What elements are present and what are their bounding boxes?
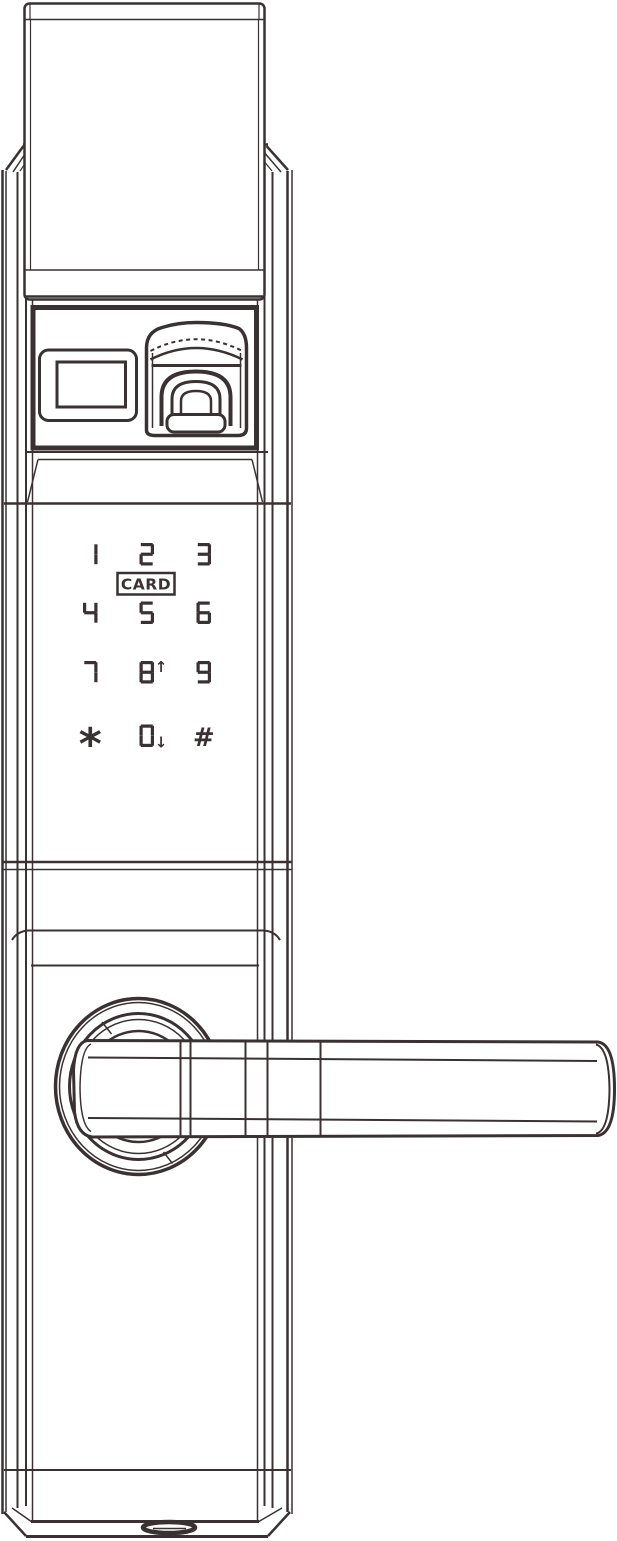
segment — [198, 671, 210, 674]
segment — [198, 562, 210, 565]
card-label: CARD — [121, 576, 171, 594]
key-0[interactable]: ↓ — [140, 725, 168, 752]
lock-drawing: CARD ↑*↓# — [0, 0, 617, 1541]
segment — [94, 554, 97, 564]
segment — [140, 736, 143, 746]
key-hash[interactable]: # — [193, 723, 215, 753]
segment — [94, 544, 97, 554]
key-7[interactable] — [84, 661, 97, 682]
key-3[interactable] — [198, 543, 211, 566]
reader-panel — [33, 308, 257, 449]
key-label: # — [193, 723, 215, 753]
handle-lever[interactable] — [74, 1041, 615, 1138]
segment — [94, 613, 97, 623]
segment — [198, 680, 210, 683]
segment — [94, 662, 97, 672]
key-2[interactable] — [140, 543, 155, 566]
scroll-down-icon: ↓ — [155, 734, 168, 752]
top-cover — [25, 4, 265, 300]
scroll-up-icon: ↑ — [155, 658, 168, 676]
segment — [198, 553, 210, 556]
fingerprint-reader[interactable] — [147, 323, 247, 436]
segment — [208, 613, 211, 623]
keypad: CARD ↑*↓# — [79, 543, 215, 770]
segment — [151, 726, 154, 736]
key-1[interactable] — [94, 544, 97, 564]
segment — [141, 562, 153, 565]
key-label: * — [79, 719, 102, 770]
segment — [94, 603, 97, 613]
segment — [140, 726, 143, 736]
handle[interactable] — [56, 999, 615, 1175]
key-5[interactable] — [140, 602, 155, 625]
usb-port — [143, 1522, 195, 1533]
segment — [141, 671, 153, 674]
key-8[interactable]: ↑ — [140, 658, 168, 684]
card-reader-badge: CARD — [118, 573, 175, 595]
key-6[interactable] — [197, 602, 212, 625]
key-4[interactable] — [83, 603, 98, 623]
segment — [141, 621, 153, 624]
key-star[interactable]: * — [79, 719, 102, 770]
segment — [94, 672, 97, 682]
door-lock-front-view: CARD ↑*↓# — [0, 0, 617, 1541]
key-9[interactable] — [197, 661, 212, 684]
